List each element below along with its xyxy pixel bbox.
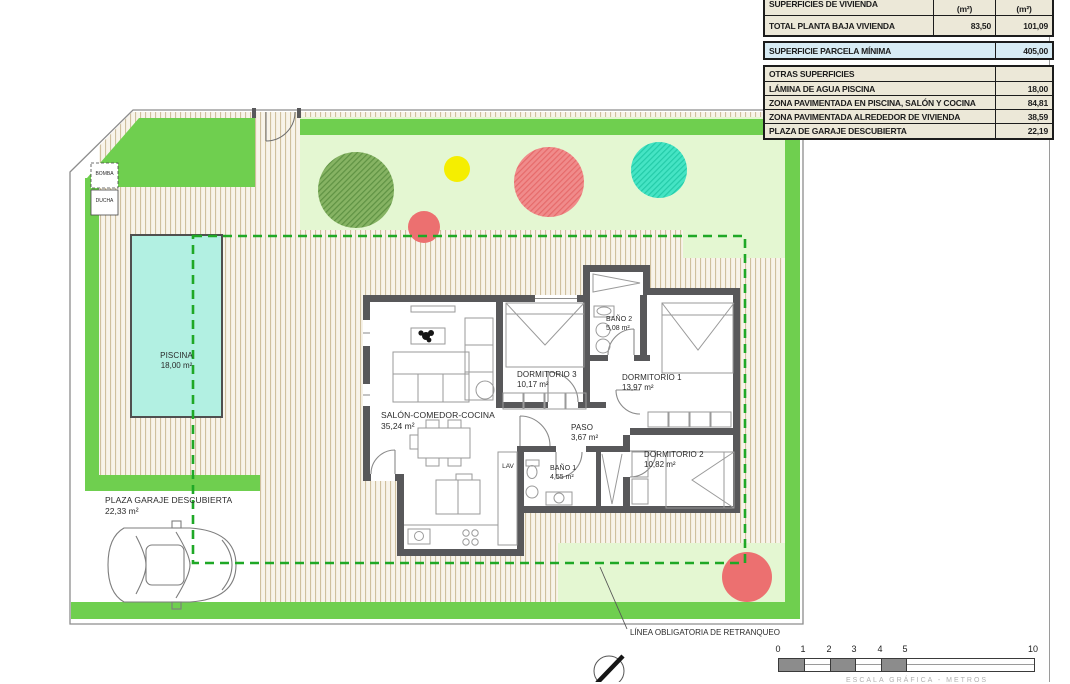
scale-bar-segment bbox=[881, 659, 907, 671]
header-m2-cell: (m²) bbox=[933, 0, 995, 15]
tree-bottom-red-icon bbox=[722, 552, 772, 602]
label-dormitorio-2: DORMITORIO 2 10,82 m² bbox=[644, 450, 704, 471]
row-value-empty bbox=[995, 67, 1052, 81]
label-ducha: DUCHA bbox=[91, 199, 118, 204]
scale-bar bbox=[778, 658, 1035, 672]
row-value: 405,00 bbox=[995, 43, 1052, 58]
row-label: PLAZA DE GARAJE DESCUBIERTA bbox=[765, 124, 995, 138]
areas-table-parcela: SUPERFICIE PARCELA MÍNIMA 405,00 bbox=[763, 41, 1054, 60]
scale-tick-label: 4 bbox=[872, 644, 888, 654]
row-value: 83,50 bbox=[933, 16, 995, 35]
scale-tick-label: 0 bbox=[770, 644, 786, 654]
scale-tick-label: 2 bbox=[821, 644, 837, 654]
row-label: TOTAL PLANTA BAJA VIVIENDA bbox=[765, 16, 933, 35]
table-header-row: SUPERFICIES DE VIVIENDA (m²) (m²) bbox=[765, 0, 1052, 15]
scale-bar-segment bbox=[830, 659, 856, 671]
table-row: LÁMINA DE AGUA PISCINA 18,00 bbox=[765, 81, 1052, 95]
table-row: ZONA PAVIMENTADA EN PISCINA, SALÓN Y COC… bbox=[765, 95, 1052, 109]
tree-red-icon bbox=[514, 147, 584, 217]
scale-tick-label: 5 bbox=[897, 644, 913, 654]
scale-tick-label: 10 bbox=[1025, 644, 1041, 654]
scale-caption: ESCALA GRÁFICA - METROS bbox=[846, 677, 988, 684]
pool bbox=[131, 235, 222, 417]
label-lav: LAV bbox=[496, 463, 520, 471]
table-row-total: TOTAL PLANTA BAJA VIVIENDA 83,50 101,09 bbox=[765, 15, 1052, 35]
label-paso: PASO 3,67 m² bbox=[571, 423, 598, 444]
label-retranqueo: LÍNEA OBLIGATORIA DE RETRANQUEO bbox=[630, 628, 780, 638]
row-value: 84,81 bbox=[995, 96, 1052, 109]
tree-teal-icon bbox=[631, 142, 687, 198]
tree-green-icon bbox=[318, 152, 394, 228]
label-bano-1: BAÑO 1 4,55 m² bbox=[550, 464, 576, 482]
label-salon: SALÓN-COMEDOR-COCINA 35,24 m² bbox=[381, 410, 495, 432]
scale-tick-label: 1 bbox=[795, 644, 811, 654]
header-m2-cell: (m²) bbox=[995, 0, 1052, 15]
label-plaza-garaje: PLAZA GARAJE DESCUBIERTA 22,33 m² bbox=[105, 495, 232, 517]
label-dormitorio-1: DORMITORIO 1 13,97 m² bbox=[622, 373, 682, 394]
row-label: LÁMINA DE AGUA PISCINA bbox=[765, 82, 995, 95]
label-piscina: PISCINA 18,00 m² bbox=[131, 351, 222, 372]
label-bano-2: BAÑO 2 5,08 m² bbox=[606, 315, 632, 333]
areas-table-vivienda: SUPERFICIES DE VIVIENDA (m²) (m²) TOTAL … bbox=[763, 0, 1054, 37]
row-label: SUPERFICIE PARCELA MÍNIMA bbox=[765, 43, 995, 58]
row-label: ZONA PAVIMENTADA ALREDEDOR DE VIVIENDA bbox=[765, 110, 995, 123]
tree-yellow-icon bbox=[444, 156, 470, 182]
row-label: ZONA PAVIMENTADA EN PISCINA, SALÓN Y COC… bbox=[765, 96, 995, 109]
row-label: OTRAS SUPERFICIES bbox=[765, 67, 995, 81]
header-label-cell: SUPERFICIES DE VIVIENDA bbox=[765, 0, 933, 15]
scale-bar-segment bbox=[779, 659, 805, 671]
tree-small-red-icon bbox=[408, 211, 440, 243]
areas-table-otras: OTRAS SUPERFICIES LÁMINA DE AGUA PISCINA… bbox=[763, 65, 1054, 140]
north-arrow-icon bbox=[594, 656, 624, 682]
table-row: PLAZA DE GARAJE DESCUBIERTA 22,19 bbox=[765, 123, 1052, 138]
row-value: 38,59 bbox=[995, 110, 1052, 123]
scale-tick-label: 3 bbox=[846, 644, 862, 654]
label-bomba: BOMBA bbox=[91, 172, 118, 177]
row-value: 22,19 bbox=[995, 124, 1052, 138]
table-row-otras-header: OTRAS SUPERFICIES bbox=[765, 67, 1052, 81]
row-value: 18,00 bbox=[995, 82, 1052, 95]
label-dormitorio-3: DORMITORIO 3 10,17 m² bbox=[517, 370, 577, 391]
table-row: ZONA PAVIMENTADA ALREDEDOR DE VIVIENDA 3… bbox=[765, 109, 1052, 123]
drawing-sheet: PISCINA 18,00 m² PLAZA GARAJE DESCUBIERT… bbox=[0, 0, 1070, 682]
row-value: 101,09 bbox=[995, 16, 1052, 35]
table-row-parcela-minima: SUPERFICIE PARCELA MÍNIMA 405,00 bbox=[765, 43, 1052, 58]
